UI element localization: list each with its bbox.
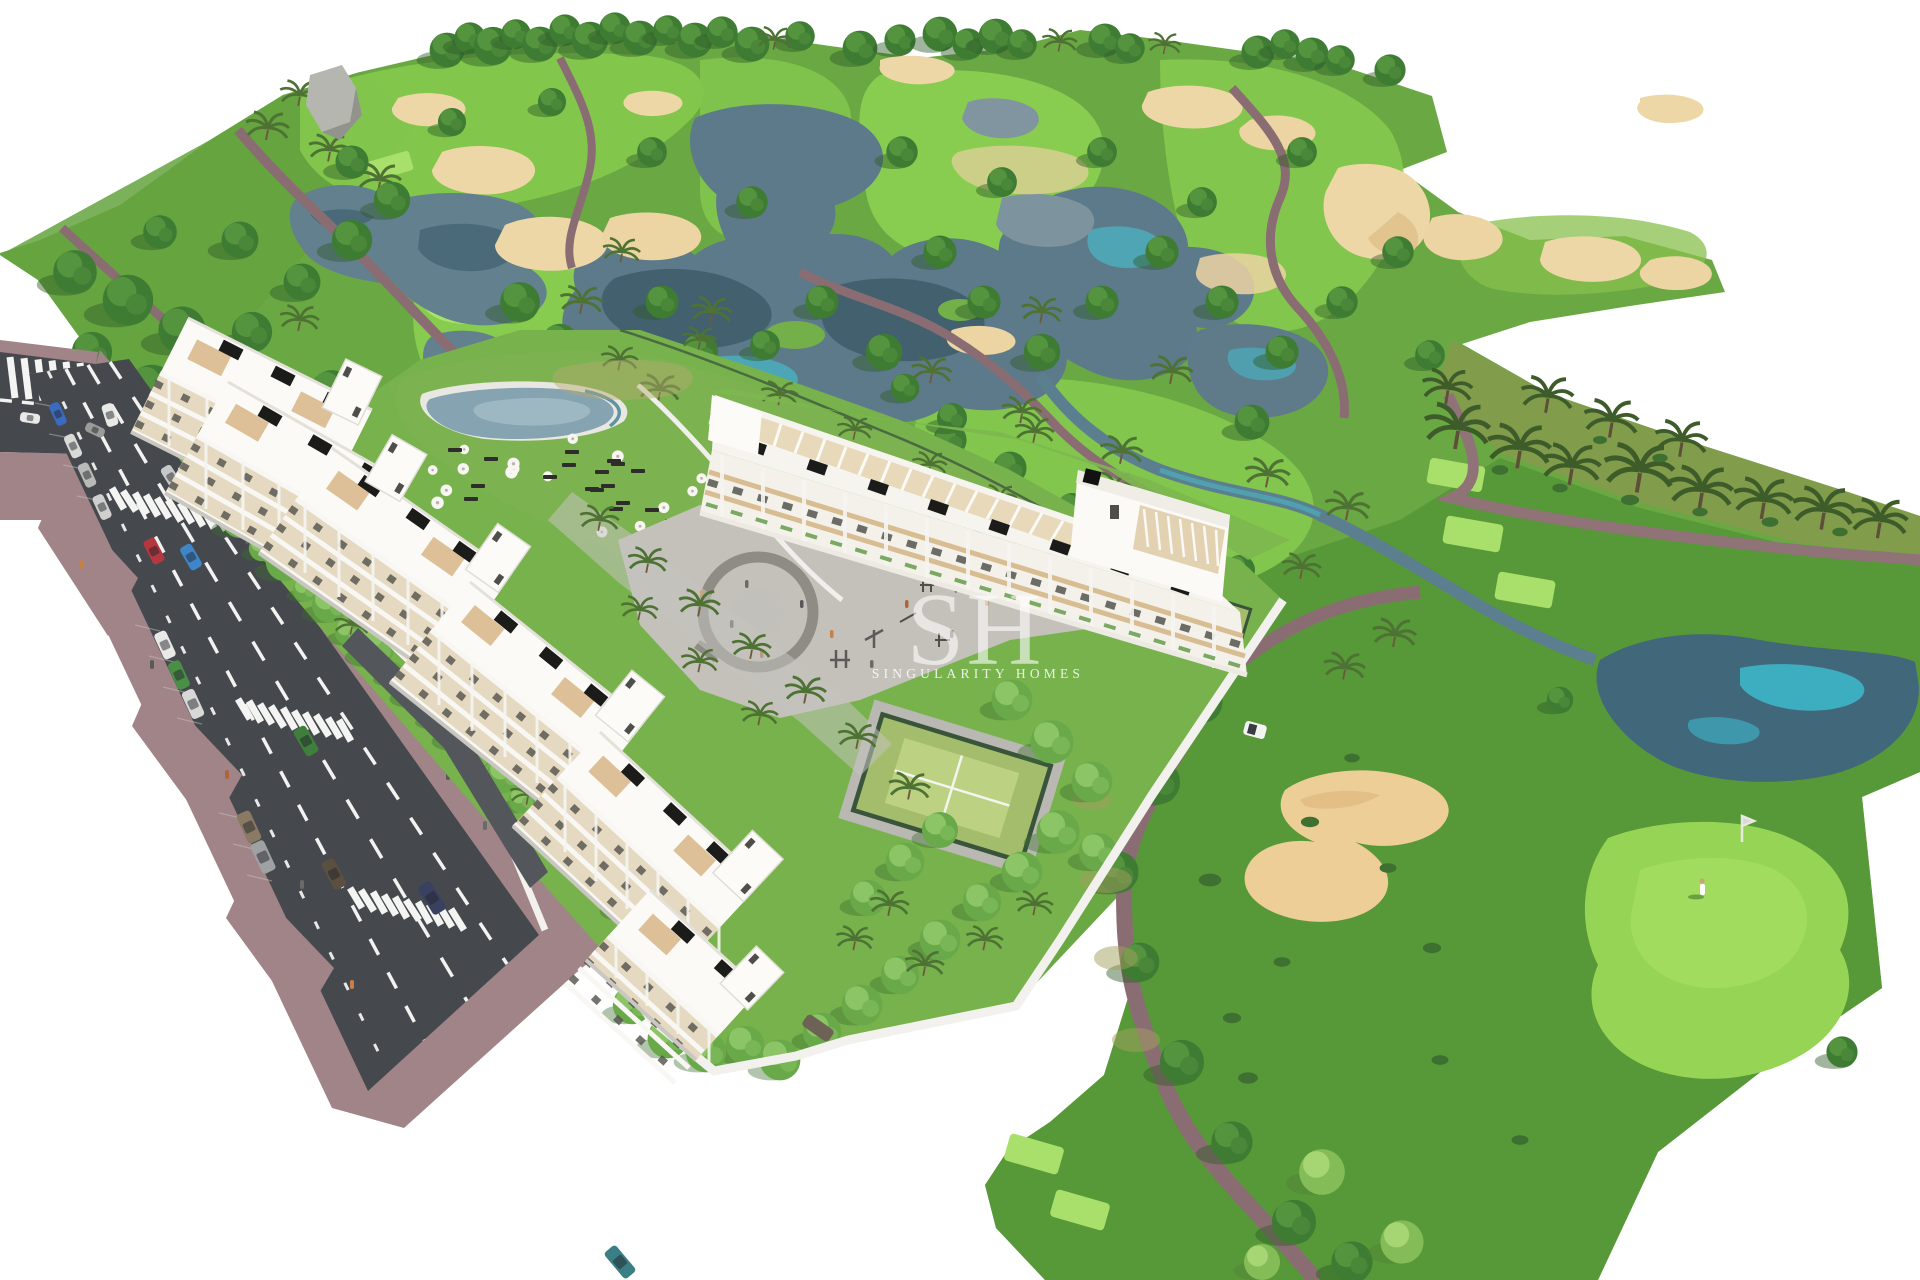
svg-text:SINGULARITY HOMES: SINGULARITY HOMES (872, 666, 1084, 681)
